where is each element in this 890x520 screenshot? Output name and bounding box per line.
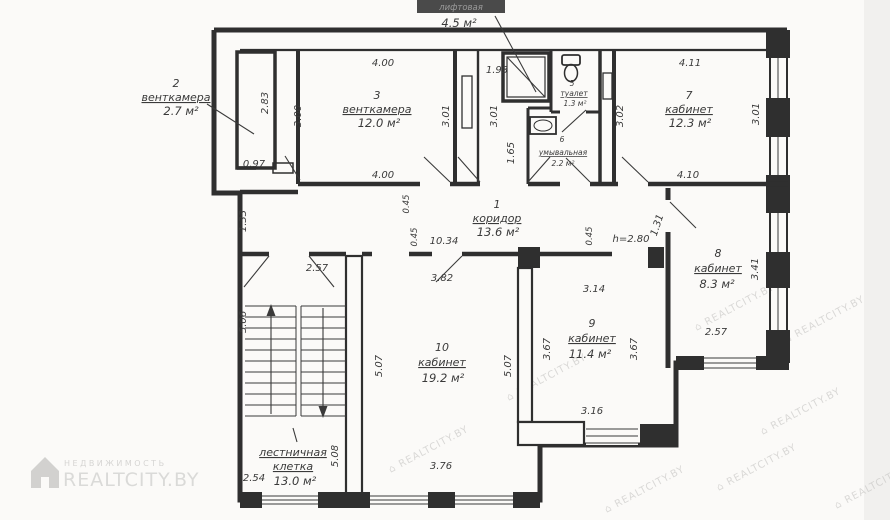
washroom-walls <box>528 108 551 184</box>
dim-label: 5.06 <box>238 311 249 333</box>
watermark: ⌂ REALTCITY.BY <box>783 294 867 346</box>
room-label-8-office: 8 кабинет 8.3 м² <box>694 247 742 291</box>
elevator-label: лифтовая <box>438 3 483 13</box>
room-area: 13.0 м² <box>274 474 317 488</box>
watermark: ⌂ REALTCITY.BY <box>603 464 687 516</box>
dim-label: 3.67 <box>542 337 553 360</box>
dim-label: 3.16 <box>581 406 603 417</box>
dim-label: 2.54 <box>243 473 265 484</box>
room-label-3-ventchamber: 3 венткамера 12.0 м² <box>342 89 411 130</box>
room-name: кабинет <box>665 103 713 116</box>
room-area: 11.4 м² <box>569 347 612 361</box>
room-number: 1 <box>494 198 501 211</box>
dim-label: 3.76 <box>430 461 452 472</box>
dim-label: 3.14 <box>583 284 605 295</box>
room-name: коридор <box>473 212 522 225</box>
dim-label: 3.01 <box>751 103 762 125</box>
duct <box>603 73 612 99</box>
room-name: кабинет <box>418 356 466 369</box>
room-label-9-office: 9 кабинет 11.4 м² <box>568 317 616 361</box>
dim-label: 4.00 <box>372 58 394 69</box>
dim-label: 5.07 <box>374 354 385 377</box>
room-name: кабинет <box>568 332 616 345</box>
dim-label: 2.57 <box>705 327 728 338</box>
room-area: 2.2 м² <box>552 159 575 168</box>
wall-pier <box>513 492 540 508</box>
lobby-door-swings <box>458 157 550 182</box>
dim-label: 1.93 <box>486 65 508 76</box>
window-fill <box>586 424 638 445</box>
room-name: туалет <box>560 89 588 98</box>
door-swings <box>244 110 696 287</box>
watermark: ⌂ REALTCITY.BY <box>387 424 471 476</box>
right-wall-pier <box>766 252 790 288</box>
watermark: ⌂ REALTCITY.BY <box>715 442 799 494</box>
stairs-icon <box>245 304 346 442</box>
dim-label: 2.83 <box>260 92 271 114</box>
room-number: 8 <box>715 247 722 260</box>
wall-pier <box>428 492 455 508</box>
dim-label: 5.07 <box>503 354 514 377</box>
watermark-stamps: ⌂ REALTCITY.BY ⌂ REALTCITY.BY ⌂ REALTCIT… <box>387 282 890 516</box>
brand-name: REALTCITY.BY <box>63 469 200 491</box>
room-label-1-corridor: 1 коридор 13.6 м² <box>473 198 522 239</box>
room-label-10-office: 10 кабинет 19.2 м² <box>418 341 466 385</box>
right-wall-pier <box>766 175 790 213</box>
room-area: 12.3 м² <box>669 116 712 130</box>
dim-label: 3.41 <box>750 258 761 280</box>
room-number: 5 <box>570 79 575 88</box>
elevator-shaft-icon <box>503 53 549 101</box>
room-area: 8.3 м² <box>699 277 735 291</box>
room-label-2-ventchamber: 2 венткамера 2.7 м² <box>141 77 210 118</box>
dim-label: 2.57 <box>306 263 329 274</box>
wc-door-swing <box>562 110 586 132</box>
dim-label: 4.11 <box>679 58 701 69</box>
sink-icon <box>530 117 556 134</box>
room-8-door-swing <box>670 202 696 228</box>
room-number: 9 <box>589 317 596 330</box>
dim-label: 1.33 <box>238 210 249 232</box>
brand-tagline: НЕДВИЖИМОСТЬ <box>64 459 167 468</box>
room-label-stairwell: лестничная клетка 13.0 м² <box>258 446 327 488</box>
stairs-label-leader <box>293 428 297 442</box>
room-10-9-wall <box>518 268 532 422</box>
dim-label: 3.67 <box>629 337 640 360</box>
room-3-door-swing <box>424 157 450 182</box>
room-name: умывальная <box>538 148 588 157</box>
dim-label: 0.45 <box>402 195 412 214</box>
room-label-elevator: лифтовая 4.5 м² <box>417 0 505 30</box>
brand-logo: НЕДВИЖИМОСТЬ REALTCITY.BY <box>31 457 200 491</box>
right-wall-pier <box>766 98 790 137</box>
stairwell-right-wall <box>346 256 362 500</box>
room-label-5-wc: 5 туалет 1.3 м² <box>560 79 588 108</box>
dim-label: 5.08 <box>330 445 341 467</box>
room-area: 1.3 м² <box>564 99 587 108</box>
dim-label: 3.00 <box>293 105 304 127</box>
room-number: 10 <box>435 341 449 354</box>
room-area: 13.6 м² <box>477 225 520 239</box>
room-number: 6 <box>560 135 565 144</box>
column-pier <box>640 424 676 445</box>
wall-pier <box>240 492 262 508</box>
dim-label: 1.31 <box>649 213 666 238</box>
room-name-line2: клетка <box>273 460 313 473</box>
watermark: ⌂ REALTCITY.BY <box>833 460 890 512</box>
dim-label: 0.97 <box>243 159 266 170</box>
corridor-top-wall <box>240 184 788 192</box>
dim-label: 3.82 <box>431 273 453 284</box>
wall-pier <box>756 356 789 370</box>
watermark: ⌂ REALTCITY.BY <box>759 386 843 438</box>
room-name-line1: лестничная <box>258 446 327 459</box>
room-10-9-wall-chunk <box>518 422 584 445</box>
toilet-icon <box>562 55 580 82</box>
dim-label: 10.34 <box>430 236 459 247</box>
room-area: 12.0 м² <box>358 116 401 130</box>
house-icon <box>31 457 59 488</box>
wall-pier <box>318 492 370 508</box>
duct <box>462 76 472 128</box>
room-label-7-office: 7 кабинет 12.3 м² <box>665 89 713 130</box>
elevator-area: 4.5 м² <box>441 16 477 30</box>
room-area: 2.7 м² <box>163 104 199 118</box>
room-name: венткамера <box>342 103 411 116</box>
dim-label: 1.65 <box>506 142 517 164</box>
dim-label: 0.45 <box>585 227 595 246</box>
column-pier <box>518 247 540 268</box>
room-area: 19.2 м² <box>422 371 465 385</box>
floor-plan-screenshot: ⌂ REALTCITY.BY ⌂ REALTCITY.BY ⌂ REALTCIT… <box>0 0 890 520</box>
room-number: 2 <box>173 77 180 90</box>
dim-label: 4.00 <box>372 170 394 181</box>
wall-pier <box>676 356 704 370</box>
floor-plan-drawing: ⌂ REALTCITY.BY ⌂ REALTCITY.BY ⌂ REALTCIT… <box>0 0 890 520</box>
dim-label: 3.01 <box>441 105 452 127</box>
room-number: 7 <box>686 89 693 102</box>
dim-label: h=2.80 <box>613 234 650 245</box>
room-number: 3 <box>374 89 381 102</box>
dim-label: 3.02 <box>615 105 626 127</box>
column-pier <box>648 247 664 268</box>
dim-label: 3.01 <box>489 105 500 127</box>
dim-label: 4.10 <box>677 170 699 181</box>
room-7-door-swing <box>622 157 648 182</box>
right-wall-pier <box>766 30 790 58</box>
dim-label: 0.45 <box>410 228 420 247</box>
room-name: кабинет <box>694 262 742 275</box>
room-name: венткамера <box>141 91 210 104</box>
